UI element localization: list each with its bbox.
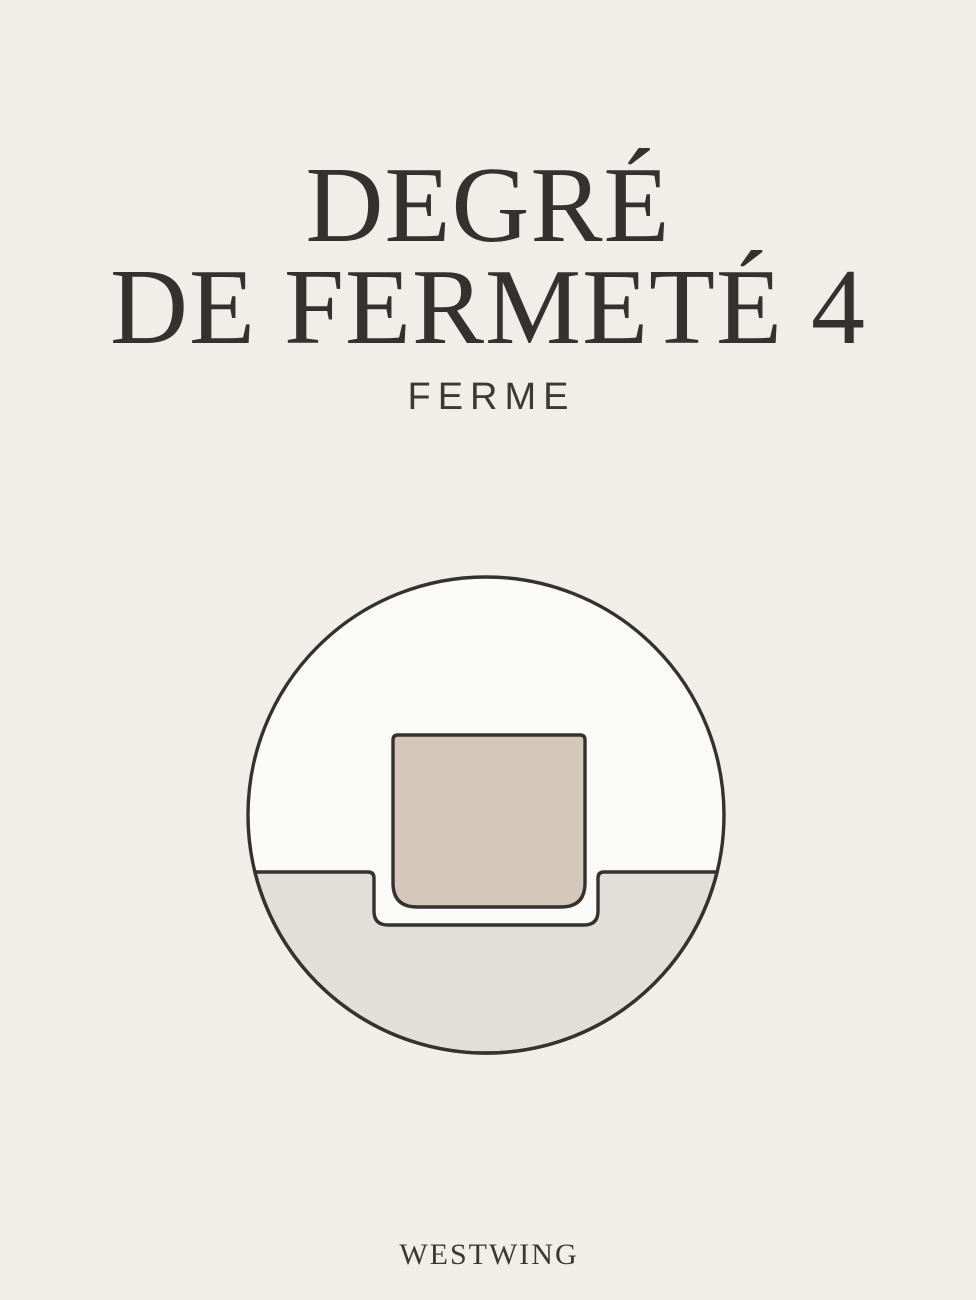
weight-block-shape bbox=[393, 735, 585, 907]
page-title: DEGRÉ DE FERMETÉ 4 bbox=[0, 155, 976, 359]
title-line-1: DEGRÉ bbox=[0, 155, 976, 257]
firmness-diagram-icon bbox=[242, 571, 730, 1059]
brand-logo: WESTWING bbox=[0, 1238, 976, 1272]
title-line-2: DE FERMETÉ 4 bbox=[0, 257, 976, 359]
infographic-page: DEGRÉ DE FERMETÉ 4 FERME WESTWING bbox=[0, 0, 976, 1300]
firmness-subtitle: FERME bbox=[0, 376, 976, 419]
